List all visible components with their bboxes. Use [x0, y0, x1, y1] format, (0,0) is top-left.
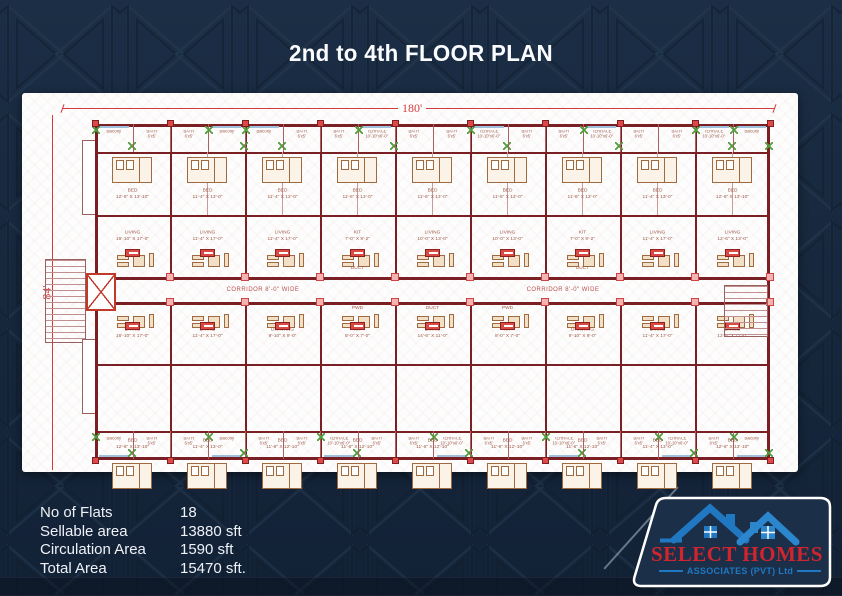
page-title: 2nd to 4th FLOOR PLAN	[13, 40, 830, 67]
logo-company-name: SELECT HOMES	[644, 542, 830, 567]
plant-icon	[503, 142, 511, 150]
window-line	[249, 126, 279, 128]
bed-label: BED 11'-6" X 13'-0"	[403, 189, 463, 201]
bed-furniture	[112, 463, 152, 489]
wall-accent-square	[92, 457, 99, 464]
duct-label: DUCT	[403, 306, 463, 312]
wall-strip	[395, 124, 396, 152]
wall-accent-square	[467, 457, 474, 464]
wall-accent-square	[392, 120, 399, 127]
pillow	[341, 160, 349, 170]
sofa-furniture	[492, 316, 504, 321]
pillow	[566, 466, 574, 476]
pillow	[726, 160, 734, 170]
plant-icon	[317, 433, 325, 441]
pillow	[351, 160, 359, 170]
bed-label: BED 12'-6" X 13'-10"	[103, 189, 163, 201]
top-strip-label: BATH 6'x5'	[176, 130, 202, 139]
top-strip-label: BATH 6'x5'	[551, 130, 577, 139]
sofa-furniture	[717, 262, 729, 267]
bed-label: BED 12'-6" X 13'-10"	[703, 189, 763, 201]
unit-badge	[425, 249, 440, 257]
pillow	[191, 160, 199, 170]
stat-label: Total Area	[40, 560, 107, 577]
stat-label: Sellable area	[40, 523, 128, 540]
stat-row: Sellable area13880 sft	[40, 523, 360, 542]
wall-accent-square	[242, 457, 249, 464]
wall-accent-square	[242, 120, 249, 127]
stat-value: 18	[180, 504, 197, 521]
sofa-furniture	[674, 314, 679, 328]
sofa-furniture	[267, 316, 279, 321]
blanket-line	[439, 158, 440, 182]
subtitle-dash-right	[797, 570, 821, 572]
bed-label: BED 11'-6" X 12'-10"	[478, 439, 538, 451]
sofa-furniture	[117, 262, 129, 267]
blanket-line	[289, 464, 290, 488]
wall-strip	[170, 124, 171, 152]
plant-icon	[242, 126, 250, 134]
pillow	[491, 160, 499, 170]
wall-accent-square	[617, 457, 624, 464]
plant-icon	[92, 433, 100, 441]
pillow	[201, 160, 209, 170]
bed-label: BED 11'-6" X 13'-0"	[553, 189, 613, 201]
sofa-furniture	[149, 314, 154, 328]
pillow	[116, 160, 124, 170]
top-strip-label: Balcony	[739, 130, 765, 135]
wall-accent-square	[92, 120, 99, 127]
wall-accent-square	[392, 457, 399, 464]
column-junction	[391, 273, 399, 281]
blanket-line	[439, 464, 440, 488]
pillow	[426, 160, 434, 170]
bed-label: BED 11'-4" X 13'-0"	[178, 189, 238, 201]
pillow	[191, 466, 199, 476]
wall-horizontal	[95, 364, 770, 366]
bed-furniture	[412, 463, 452, 489]
wall-strip	[245, 431, 246, 459]
staircase-left	[45, 259, 86, 343]
sofa-furniture	[417, 262, 429, 267]
pillow	[341, 466, 349, 476]
window-line	[662, 455, 692, 457]
blanket-line	[364, 464, 365, 488]
top-strip-label: TERRACE 10'-10"x6'-0"	[364, 130, 390, 139]
column-junction	[466, 273, 474, 281]
bed-furniture	[487, 463, 527, 489]
balcony-left	[82, 339, 95, 414]
corridor-label: CORRIDOR 8'-0" WIDE	[212, 287, 314, 293]
pillow	[266, 160, 274, 170]
living-label: LIVING 11'-4" X 17'-0"	[178, 231, 238, 243]
bed-furniture	[262, 157, 302, 183]
wall-strip	[395, 431, 396, 459]
top-strip-label: TERRACE 10'-10"x6'-0"	[701, 130, 727, 139]
plant-icon	[467, 126, 475, 134]
unit-badge	[350, 322, 365, 330]
blanket-line	[139, 158, 140, 182]
pillow	[651, 466, 659, 476]
stat-label: No of Flats	[40, 504, 113, 521]
top-strip-label: BATH 6'x5'	[326, 130, 352, 139]
sofa-furniture	[192, 262, 204, 267]
staircase-right	[724, 285, 768, 337]
plant-icon	[580, 126, 588, 134]
blanket-line	[289, 158, 290, 182]
window-line	[587, 126, 617, 128]
bed-furniture	[187, 157, 227, 183]
wall-strip	[170, 431, 171, 459]
pillow	[266, 466, 274, 476]
pillow	[351, 466, 359, 476]
pillow	[641, 466, 649, 476]
pillow	[576, 466, 584, 476]
balcony-left	[82, 140, 95, 215]
blanket-line	[664, 464, 665, 488]
bed-label: BED 11'-6" X 13'-0"	[328, 189, 388, 201]
plant-icon	[690, 449, 698, 457]
pillow	[651, 160, 659, 170]
bed-label: BED 11'-6" X 12'-10"	[253, 439, 313, 451]
pillow	[576, 160, 584, 170]
sofa-furniture	[567, 316, 579, 321]
unit-badge	[125, 249, 140, 257]
wall-strip	[433, 124, 434, 152]
pillow	[116, 466, 124, 476]
bed-furniture	[562, 157, 602, 183]
wall-strip	[320, 124, 321, 152]
blanket-line	[739, 158, 740, 182]
wall-strip	[620, 431, 621, 459]
plant-icon	[92, 126, 100, 134]
living-label: KIT 7'-0" X 9'-2"	[328, 231, 388, 243]
bed-furniture	[412, 157, 452, 183]
bed-label: BED 11'-4" X 13'-0"	[178, 439, 238, 451]
wall-strip	[620, 124, 621, 152]
wall-horizontal	[95, 302, 770, 305]
bed-label: BED 11'-6" X 13'-0"	[478, 189, 538, 201]
pillow	[276, 160, 284, 170]
plant-icon	[390, 142, 398, 150]
top-strip-label: Balcony	[101, 130, 127, 135]
unit-badge	[725, 249, 740, 257]
sofa-furniture	[224, 314, 229, 328]
plant-icon	[728, 142, 736, 150]
wall-accent-square	[692, 457, 699, 464]
plant-icon	[615, 142, 623, 150]
dim-width-label: 180'	[398, 101, 426, 116]
top-strip-label: Balcony	[251, 130, 277, 135]
sofa-furniture	[117, 316, 129, 321]
top-strip-label: BATH 6'x5'	[401, 130, 427, 139]
window-line	[99, 126, 129, 128]
pillow	[566, 160, 574, 170]
column-junction	[691, 273, 699, 281]
plant-icon	[765, 142, 773, 150]
duct-label: PWD	[328, 306, 388, 312]
corridor-label: CORRIDOR 8'-0" WIDE	[512, 287, 614, 293]
stat-label: Circulation Area	[40, 541, 146, 558]
column-junction	[541, 298, 549, 306]
wall-accent-square	[467, 120, 474, 127]
sofa-furniture	[449, 253, 454, 267]
bed-furniture	[112, 157, 152, 183]
bed-furniture	[337, 157, 377, 183]
living-label: LIVING 16'-10" X 17'-0"	[103, 231, 163, 243]
column-junction	[166, 298, 174, 306]
window-line	[99, 455, 129, 457]
wall-strip	[658, 124, 659, 152]
sofa-furniture	[224, 253, 229, 267]
bed-furniture	[187, 463, 227, 489]
plant-icon	[692, 126, 700, 134]
bed-furniture	[562, 463, 602, 489]
wall-accent-square	[542, 120, 549, 127]
unit-badge	[575, 322, 590, 330]
top-strip-label: BATH 6'x5'	[289, 130, 315, 139]
blanket-line	[739, 464, 740, 488]
unit-badge	[500, 322, 515, 330]
window-line	[699, 126, 729, 128]
pillow	[416, 160, 424, 170]
logo-subtitle: ASSOCIATES (PVT) Ltd	[652, 566, 828, 576]
bed-label: BED 12'-6" X 13'-10"	[103, 439, 163, 451]
column-junction	[316, 298, 324, 306]
unit-badge	[275, 322, 290, 330]
sofa-furniture	[417, 316, 429, 321]
bed-label: BED 11'-4" X 13'-0"	[628, 189, 688, 201]
bed-label: BED 11'-4" X 13'-0"	[628, 439, 688, 451]
sofa-furniture	[642, 316, 654, 321]
bed-label: BED 11'-6" X 12'-10"	[403, 439, 463, 451]
pillow	[201, 466, 209, 476]
unit-badge	[200, 322, 215, 330]
column-junction	[466, 298, 474, 306]
blanket-line	[364, 158, 365, 182]
pillow	[641, 160, 649, 170]
sofa-furniture	[149, 253, 154, 267]
bed-furniture	[637, 463, 677, 489]
sofa-furniture	[599, 314, 604, 328]
wall-horizontal	[95, 277, 770, 280]
bed-furniture	[637, 157, 677, 183]
sofa-furniture	[674, 253, 679, 267]
wall-strip	[545, 124, 546, 152]
blanket-line	[139, 464, 140, 488]
bed-label: BED 11'-4" X 13'-0"	[253, 189, 313, 201]
column-junction	[166, 273, 174, 281]
unit-badge	[425, 322, 440, 330]
pillow	[416, 466, 424, 476]
plant-icon	[240, 142, 248, 150]
sofa-furniture	[524, 253, 529, 267]
column-junction	[616, 298, 624, 306]
plant-icon	[542, 433, 550, 441]
duct-label: PWD	[478, 306, 538, 312]
blanket-line	[514, 464, 515, 488]
stat-value: 13880 sft	[180, 523, 242, 540]
top-strip-label: BATH 6'x5'	[514, 130, 540, 139]
unit-badge	[125, 322, 140, 330]
top-strip-label: TERRACE 10'-10"x6'-0"	[589, 130, 615, 139]
wall-strip	[470, 431, 471, 459]
window-line	[549, 455, 579, 457]
sofa-furniture	[299, 253, 304, 267]
living-label: LIVING 10'-0" X 13'-0"	[403, 231, 463, 243]
column-junction	[691, 298, 699, 306]
window-line	[212, 126, 242, 128]
unit-badge	[500, 249, 515, 257]
duct-label: DUCT	[328, 266, 388, 272]
plant-icon	[765, 449, 773, 457]
pillow	[716, 160, 724, 170]
column-junction	[766, 273, 774, 281]
blanket-line	[214, 158, 215, 182]
top-strip-label: BATH 6'x5'	[626, 130, 652, 139]
unit-badge	[200, 249, 215, 257]
column-junction	[541, 273, 549, 281]
blanket-line	[589, 158, 590, 182]
window-line	[212, 455, 242, 457]
plant-icon	[465, 449, 473, 457]
window-line	[737, 126, 767, 128]
column-junction	[241, 298, 249, 306]
living-label: LIVING 10'-0" X 13'-0"	[478, 231, 538, 243]
wall-strip	[508, 124, 509, 152]
window-line	[437, 455, 467, 457]
dim-tick	[772, 104, 776, 113]
blanket-line	[589, 464, 590, 488]
window-line	[737, 455, 767, 457]
wall-horizontal	[95, 215, 770, 217]
bed-label: BED 11'-6" X 12'-10"	[328, 439, 388, 451]
blanket-line	[514, 158, 515, 182]
plant-icon	[355, 126, 363, 134]
sofa-furniture	[749, 253, 754, 267]
pillow	[426, 466, 434, 476]
top-strip-label: TERRACE 10'-10"x6'-0"	[476, 130, 502, 139]
blanket-line	[664, 158, 665, 182]
pillow	[491, 466, 499, 476]
column-junction	[391, 298, 399, 306]
unit-badge	[575, 249, 590, 257]
pillow	[126, 466, 134, 476]
wall-strip	[283, 124, 284, 152]
pillow	[126, 160, 134, 170]
bed-furniture	[712, 463, 752, 489]
living-label: LIVING 11'-4" X 17'-0"	[628, 231, 688, 243]
wall-accent-square	[767, 120, 774, 127]
wall-accent-square	[167, 457, 174, 464]
top-strip-label: Balcony	[214, 130, 240, 135]
company-logo: SELECT HOMES ASSOCIATES (PVT) Ltd	[622, 492, 838, 592]
column-junction	[241, 273, 249, 281]
sofa-furniture	[299, 314, 304, 328]
unit-badge	[275, 249, 290, 257]
wall-accent-square	[317, 120, 324, 127]
sofa-furniture	[374, 314, 379, 328]
wall-accent-square	[692, 120, 699, 127]
wall-accent-square	[767, 457, 774, 464]
bed-label: BED 11'-6" X 12'-10"	[553, 439, 613, 451]
plant-icon	[128, 142, 136, 150]
wall-accent-square	[317, 457, 324, 464]
sofa-furniture	[449, 314, 454, 328]
subtitle-dash-left	[659, 570, 683, 572]
window-line	[362, 126, 392, 128]
plant-icon	[240, 449, 248, 457]
sofa-furniture	[192, 316, 204, 321]
unit-badge	[650, 249, 665, 257]
sofa-furniture	[267, 262, 279, 267]
column-junction	[616, 273, 624, 281]
sofa-furniture	[642, 262, 654, 267]
unit-badge	[650, 322, 665, 330]
pillow	[726, 466, 734, 476]
stat-row: No of Flats18	[40, 504, 360, 523]
wall-accent-square	[542, 457, 549, 464]
top-strip-label: BATH 6'x5'	[439, 130, 465, 139]
stat-value: 1590 sft	[180, 541, 233, 558]
pillow	[501, 466, 509, 476]
wall-accent-square	[167, 120, 174, 127]
floor-plan-panel: 180'84'BalconyBATH 6'x5'BATH 6'x5'Balcon…	[22, 93, 798, 472]
wall-strip	[695, 431, 696, 459]
blanket-line	[214, 464, 215, 488]
living-label: LIVING 11'-4" X 17'-0"	[253, 231, 313, 243]
stat-row: Total Area15470 sft.	[40, 560, 360, 579]
window-line	[324, 455, 354, 457]
wall-horizontal	[95, 152, 770, 154]
bed-furniture	[337, 463, 377, 489]
bed-label: BED 12'-6" X 13'-10"	[703, 439, 763, 451]
plant-icon	[730, 126, 738, 134]
living-label: LIVING 12'-6" X 13'-0"	[703, 231, 763, 243]
column-junction	[316, 273, 324, 281]
top-strip-label: BATH 6'x5'	[664, 130, 690, 139]
bed-furniture	[487, 157, 527, 183]
wall-accent-square	[617, 120, 624, 127]
plant-icon	[205, 126, 213, 134]
living-label: KIT 7'-0" X 9'-2"	[553, 231, 613, 243]
pillow	[716, 466, 724, 476]
wall-strip	[133, 124, 134, 152]
stat-value: 15470 sft.	[180, 560, 246, 577]
sofa-furniture	[524, 314, 529, 328]
elevator-x-mark	[86, 273, 116, 311]
stats-block: No of Flats18Sellable area13880 sftCircu…	[40, 504, 360, 578]
duct-label: DUCT	[553, 266, 613, 272]
window-line	[474, 126, 504, 128]
pillow	[276, 466, 284, 476]
sofa-furniture	[492, 262, 504, 267]
pillow	[501, 160, 509, 170]
bed-furniture	[262, 463, 302, 489]
stat-row: Circulation Area1590 sft	[40, 541, 360, 560]
plant-icon	[278, 142, 286, 150]
sofa-furniture	[342, 316, 354, 321]
unit-badge	[350, 249, 365, 257]
bed-furniture	[712, 157, 752, 183]
top-strip-label: BATH 6'x5'	[139, 130, 165, 139]
